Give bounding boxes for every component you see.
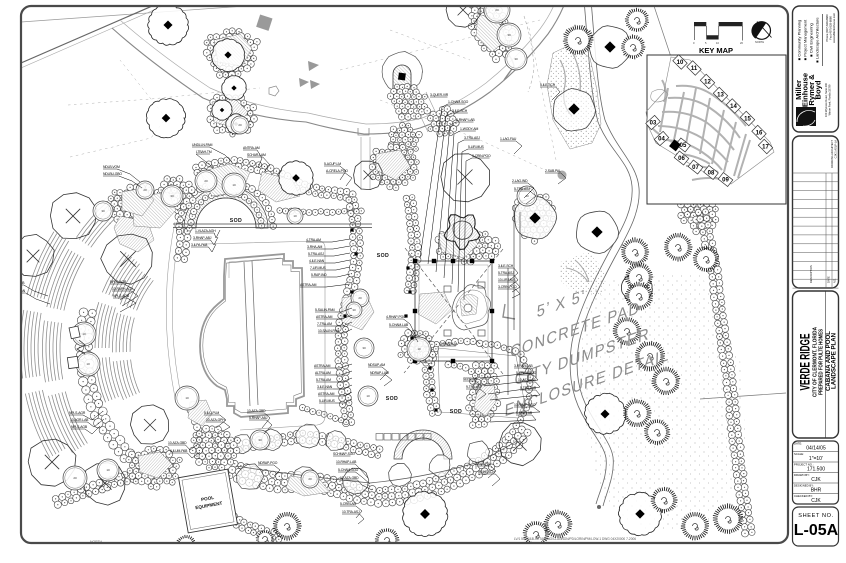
svg-text:5-TRA-LAB: 5-TRA-LAB (520, 386, 537, 390)
svg-text:3-ILE-SCH: 3-ILE-SCH (452, 109, 468, 113)
svg-text:2-SAB-PAL: 2-SAB-PAL (475, 462, 491, 466)
svg-text:■ Community Planning: ■ Community Planning (797, 20, 802, 60)
svg-text:3-RHAP-LM: 3-RHAP-LM (440, 342, 457, 346)
svg-text:CJK: CJK (811, 477, 821, 483)
svg-text:15: 15 (744, 117, 751, 123)
svg-text:07: 07 (692, 165, 699, 171)
svg-text:5-ACUP-LM: 5-ACUP-LM (324, 162, 341, 166)
svg-text:5-CHAM-SGO: 5-CHAM-SGO (338, 468, 359, 472)
svg-text:3-ILE-SCH: 3-ILE-SCH (498, 264, 514, 268)
svg-text:17: 17 (762, 145, 769, 151)
svg-text:SCHAR-LAM: SCHAR-LAM (247, 153, 266, 157)
svg-text:ALTRA-AM: ALTRA-AM (315, 371, 331, 375)
svg-text:CJK 1 ASLP-LA: CJK 1 ASLP-LA (834, 140, 838, 159)
svg-text:20: 20 (238, 123, 242, 127)
svg-text:4-RHAP-PGO: 4-RHAP-PGO (386, 315, 406, 319)
svg-text:Boyd: Boyd (814, 80, 823, 99)
svg-text:5-LIR-MUS: 5-LIR-MUS (319, 399, 335, 403)
svg-text:16: 16 (756, 131, 763, 137)
svg-text:SOD: SOD (377, 253, 389, 259)
svg-text:ASTRA-AM: ASTRA-AM (316, 315, 333, 319)
svg-text:DRAWN BY:: DRAWN BY: (794, 473, 810, 477)
svg-text:10-AZA-GBD: 10-AZA-GBD (168, 441, 187, 445)
svg-text:Fax (407) 628-8880: Fax (407) 628-8880 (829, 16, 833, 40)
svg-text:10-AZA-LAB: 10-AZA-LAB (518, 378, 536, 382)
svg-text:10-RHAP-LAB: 10-RHAP-LAB (336, 460, 357, 464)
svg-text:5-SALIN-PAM: 5-SALIN-PAM (315, 308, 335, 312)
svg-text:1-WODY-AM: 1-WODY-AM (460, 127, 478, 131)
svg-text:10-AZA-GPH: 10-AZA-GPH (206, 418, 225, 422)
svg-text:NPLS-AGB: NPLS-AGB (113, 294, 130, 298)
svg-text:1-LAG-FAU: 1-LAG-FAU (500, 137, 517, 141)
svg-text:DESCRIPTION: DESCRIPTION (809, 265, 813, 283)
svg-text:DATE: DATE (827, 276, 831, 283)
svg-text:NPLS-AGR: NPLS-AGR (110, 280, 127, 284)
svg-text:30: 30 (362, 346, 366, 350)
svg-text:UNDLLN-PAM: UNDLLN-PAM (192, 143, 213, 147)
svg-text:Phone (407) 628-8880: Phone (407) 628-8880 (825, 14, 829, 41)
svg-text:5-TRA-ASJ: 5-TRA-ASJ (498, 271, 514, 275)
svg-text:KEY MAP: KEY MAP (699, 46, 733, 55)
svg-text:4-ILE-NAN: 4-ILE-NAN (309, 259, 325, 263)
svg-text:ASTRA-AM: ASTRA-AM (318, 392, 335, 396)
svg-text:NDLBU-GBO: NDLBU-GBO (103, 172, 122, 176)
svg-text:10: 10 (232, 183, 236, 187)
svg-text:3-RHAP-LAB: 3-RHAP-LAB (514, 364, 533, 368)
svg-text:7-LIR-MUS: 7-LIR-MUS (310, 266, 326, 270)
svg-text:13: 13 (717, 93, 724, 99)
svg-text:1-VLAZA-AGH: 1-VLAZA-AGH (195, 229, 216, 233)
svg-text:1″=10’: 1″=10’ (809, 456, 823, 462)
svg-text:BHR: BHR (811, 488, 822, 494)
svg-text:04: 04 (658, 137, 665, 143)
svg-text:CHECKED BY:: CHECKED BY: (794, 494, 813, 498)
svg-text:5-RHAP-LAB: 5-RHAP-LAB (456, 118, 475, 122)
svg-text:30: 30 (507, 33, 511, 37)
svg-text:10-AGR-LAB: 10-AGR-LAB (70, 418, 89, 422)
svg-text:NO.: NO. (833, 278, 837, 283)
svg-text:5-ILE-SCH: 5-ILE-SCH (540, 83, 556, 87)
svg-text:3-CRIN-PGO: 3-CRIN-PGO (472, 154, 491, 158)
svg-text:NDSUP-AM: NDSUP-AM (368, 363, 385, 367)
svg-text:SOD: SOD (230, 218, 242, 224)
svg-text:20: 20 (143, 188, 147, 192)
svg-text:5-TRA-ASJ: 5-TRA-ASJ (514, 187, 530, 191)
svg-text:5-CHAM-LAB: 5-CHAM-LAB (389, 323, 409, 327)
svg-text:LV/1 500 R&B-RETAINING/CLANNO: LV/1 500 R&B-RETAINING/CLANNON/PD/LORIN/… (514, 537, 636, 541)
svg-text:3-RHAP-ABJ: 3-RHAP-ABJ (193, 236, 212, 240)
svg-text:100 Wymore Road, Suite 200: 100 Wymore Road, Suite 200 (824, 82, 828, 117)
svg-text:CJK: CJK (811, 498, 821, 504)
svg-text:5-CHAM-SGO: 5-CHAM-SGO (516, 371, 537, 375)
svg-text:10: 10 (185, 396, 189, 400)
svg-text:■ Civil Engineering: ■ Civil Engineering (809, 23, 814, 57)
svg-text:■ Landscape Architecture: ■ Landscape Architecture (815, 17, 820, 63)
svg-text:171.500: 171.500 (807, 467, 825, 473)
svg-text:NDRAP-PGO: NDRAP-PGO (258, 461, 278, 465)
svg-text:04/14/05: 04/14/05 (806, 446, 826, 452)
svg-text:10: 10 (86, 362, 90, 366)
svg-text:SOD: SOD (450, 409, 462, 415)
svg-text:10: 10 (366, 394, 370, 398)
svg-text:10-ILE-SCH: 10-ILE-SCH (478, 470, 495, 474)
svg-text:06: 06 (678, 156, 685, 162)
svg-text:30: 30 (258, 438, 262, 442)
svg-text:10-SALIN-PAM: 10-SALIN-PAM (318, 329, 339, 333)
svg-text:3-ILPA-PAB: 3-ILPA-PAB (191, 243, 208, 247)
svg-text:11: 11 (691, 66, 698, 72)
svg-text:www.MillerEinhouse.com: www.MillerEinhouse.com (832, 12, 836, 43)
svg-text:30: 30 (170, 194, 174, 198)
svg-text:10-AZA-GBD: 10-AZA-GBD (247, 409, 266, 413)
svg-text:30: 30 (514, 57, 518, 61)
svg-text:LTBAH-TM: LTBAH-TM (196, 150, 212, 154)
svg-text:SCALE:: SCALE: (794, 452, 804, 456)
svg-text:2-SAB-PAL: 2-SAB-PAL (545, 169, 561, 173)
svg-text:SHEET NO.: SHEET NO. (798, 513, 833, 519)
svg-text:NDLB-VOM: NDLB-VOM (103, 165, 120, 169)
svg-text:DRAWING ARCHITECT: DRAWING ARCHITECT (830, 140, 834, 168)
svg-text:20: 20 (495, 8, 499, 12)
svg-text:4-TRA-AM: 4-TRA-AM (306, 238, 321, 242)
svg-text:05: 05 (680, 143, 687, 149)
svg-text:10-RAPH-AGJ: 10-RAPH-AGJ (112, 287, 133, 291)
svg-text:NORTH: NORTH (755, 40, 764, 44)
svg-text:5-ILU-PLM: 5-ILU-PLM (204, 411, 219, 415)
svg-text:5-TRA-ASJ: 5-TRA-ASJ (308, 252, 324, 256)
svg-text:10-RHAP-SGO: 10-RHAP-SGO (514, 403, 536, 407)
svg-text:10-TRA-ASJ: 10-TRA-ASJ (342, 510, 360, 514)
svg-text:20: 20 (308, 477, 312, 481)
svg-text:ASTRA-AM: ASTRA-AM (314, 364, 331, 368)
svg-text:L-05A: L-05A (794, 522, 839, 539)
svg-text:08: 08 (708, 171, 715, 177)
svg-text:10: 10 (106, 468, 110, 472)
svg-text:3-TRA-ASJ: 3-TRA-ASJ (464, 136, 480, 140)
svg-text:5-SAB-LAB: 5-SAB-LAB (516, 411, 533, 415)
svg-text:14: 14 (730, 104, 737, 110)
svg-text:9-TRA-AM: 9-TRA-AM (466, 385, 481, 389)
svg-text:5-RHAP-ABJ: 5-RHAP-ABJ (249, 416, 268, 420)
svg-text:10: 10 (677, 60, 684, 66)
svg-text:3-RHA-AM: 3-RHA-AM (307, 245, 323, 249)
svg-text:3-QUER-VIR: 3-QUER-VIR (430, 93, 449, 97)
svg-text:30: 30 (352, 308, 356, 312)
svg-text:20: 20 (73, 476, 77, 480)
svg-text:09: 09 (722, 178, 729, 184)
svg-text:10-AZA-GBD: 10-AZA-GBD (340, 476, 359, 480)
svg-text:PREPARED FOR PULTE HOMES: PREPARED FOR PULTE HOMES (819, 328, 825, 395)
svg-text:10: 10 (293, 214, 297, 218)
svg-text:5-TRA-AM: 5-TRA-AM (316, 378, 331, 382)
svg-text:SCHMAP-SGO: SCHMAP-SGO (333, 452, 355, 456)
svg-text:30: 30 (101, 209, 105, 213)
svg-text:VERDE RIDGE: VERDE RIDGE (798, 334, 813, 391)
svg-text:NDRAP-LAM: NDRAP-LAM (370, 371, 389, 375)
svg-text:NPLS-AGR: NPLS-AGR (69, 411, 86, 415)
svg-text:5-LIR-MUS: 5-LIR-MUS (468, 145, 484, 149)
svg-text:SOD: SOD (386, 396, 398, 402)
svg-text:20: 20 (204, 179, 208, 183)
svg-text:SERE-AB: SERE-AB (463, 377, 478, 381)
svg-text:5-CRIN-AM: 5-CRIN-AM (340, 502, 356, 506)
svg-text:10-LIR-MUS: 10-LIR-MUS (498, 278, 516, 282)
svg-text:1-CHAM-SGO: 1-CHAM-SGO (448, 100, 469, 104)
svg-text:A-CRELA-PGO: A-CRELA-PGO (326, 169, 348, 173)
svg-text:20: 20 (358, 296, 362, 300)
svg-text:7-TRA-AM: 7-TRA-AM (317, 322, 332, 326)
svg-text:LANDSCAPE PLAN: LANDSCAPE PLAN (830, 332, 837, 389)
svg-text:12: 12 (704, 80, 711, 86)
svg-text:10: 10 (82, 332, 86, 336)
svg-text:■ Project Management: ■ Project Management (803, 19, 808, 60)
svg-text:Winter Park, Florida 32789: Winter Park, Florida 32789 (828, 84, 832, 115)
svg-text:ANTRA-AM: ANTRA-AM (243, 146, 260, 150)
svg-text:03: 03 (650, 121, 657, 127)
svg-text:NPLS-AGB: NPLS-AGB (71, 425, 88, 429)
svg-text:2-LAG-IND: 2-LAG-IND (512, 179, 528, 183)
svg-text:ASTRA-AM: ASTRA-AM (300, 283, 317, 287)
svg-text:DATE:: DATE: (794, 442, 802, 446)
svg-text:10: 10 (417, 347, 421, 351)
svg-text:5-RAP-IND: 5-RAP-IND (311, 273, 327, 277)
svg-text:6-ILUM-PAB: 6-ILUM-PAB (170, 449, 188, 453)
svg-text:3-ILE-NAN: 3-ILE-NAN (317, 385, 333, 389)
